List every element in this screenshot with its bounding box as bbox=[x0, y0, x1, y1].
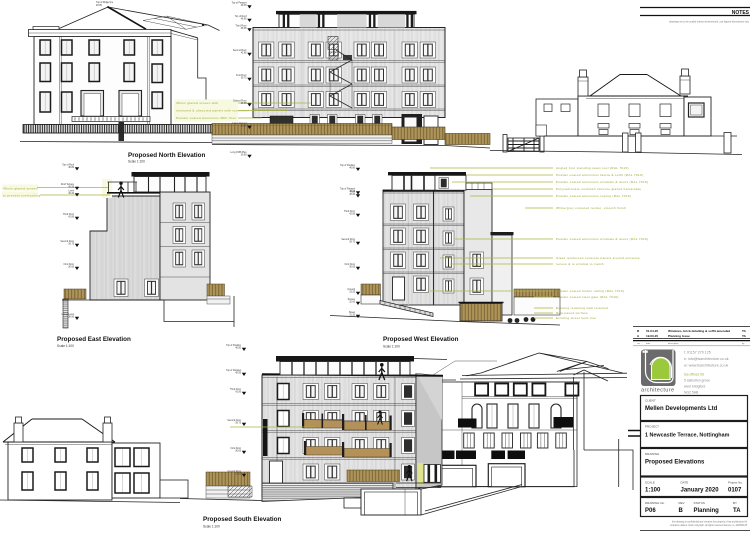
svg-text:PROJECT: PROJECT bbox=[645, 425, 659, 429]
svg-text:Proposed South Elevation: Proposed South Elevation bbox=[203, 516, 282, 523]
svg-text:Top of Parapet: Top of Parapet bbox=[226, 369, 241, 372]
svg-text:46.80: 46.80 bbox=[235, 347, 241, 349]
svg-text:west bridgford: west bridgford bbox=[684, 385, 705, 389]
svg-text:Top of Parapet: Top of Parapet bbox=[340, 187, 355, 190]
svg-text:39.75: 39.75 bbox=[349, 241, 355, 243]
svg-text:Polycarbonate multiwall obscur: Polycarbonate multiwall obscure glazed b… bbox=[556, 187, 641, 191]
svg-text:19.03.20: 19.03.20 bbox=[646, 334, 658, 338]
svg-text:32.60: 32.60 bbox=[349, 301, 355, 303]
svg-text:ordnance data is crown copyrig: ordnance data is crown copyright, all ri… bbox=[670, 524, 748, 527]
svg-text:30.80: 30.80 bbox=[241, 154, 247, 156]
svg-text:36.65: 36.65 bbox=[235, 450, 241, 452]
svg-text:description: description bbox=[668, 342, 679, 345]
svg-text:Proposed North Elevation: Proposed North Elevation bbox=[128, 152, 205, 159]
svg-text:46.80: 46.80 bbox=[241, 18, 247, 20]
svg-text:46.80: 46.80 bbox=[349, 167, 355, 169]
svg-text:First Floor: First Floor bbox=[231, 447, 242, 450]
svg-text:1 Newcastle Terrace, Nottingha: 1 Newcastle Terrace, Nottingham bbox=[645, 433, 730, 439]
svg-text:45.20: 45.20 bbox=[68, 193, 74, 195]
svg-text:45.95: 45.95 bbox=[241, 28, 247, 30]
svg-text:e: info@tsarchitecture.co.uk: e: info@tsarchitecture.co.uk bbox=[684, 357, 729, 361]
svg-text:01.04.20: 01.04.20 bbox=[646, 329, 658, 333]
svg-text:Second Floor: Second Floor bbox=[227, 419, 241, 422]
svg-text:Windows, brick detailing & sof: Windows, brick detailing & soffit amende… bbox=[668, 329, 730, 333]
svg-text:Planning: Planning bbox=[694, 508, 720, 514]
svg-text:New paved surface: New paved surface bbox=[556, 311, 588, 315]
svg-text:Third Floor: Third Floor bbox=[235, 24, 246, 27]
svg-text:Powder coated aluminium fascia: Powder coated aluminium fascia & soffit … bbox=[556, 173, 643, 177]
svg-text:Scale 1:100: Scale 1:100 bbox=[57, 344, 74, 348]
svg-text:42.85: 42.85 bbox=[241, 52, 247, 54]
svg-text:5 salbutton grove: 5 salbutton grove bbox=[684, 379, 710, 383]
svg-text:Proposed East Elevation: Proposed East Elevation bbox=[57, 336, 131, 343]
svg-text:49.35: 49.35 bbox=[241, 5, 247, 7]
svg-text:Proposed Elevations: Proposed Elevations bbox=[645, 460, 705, 466]
svg-text:Scale 1:100: Scale 1:100 bbox=[128, 160, 145, 164]
svg-text:January 2020: January 2020 bbox=[681, 488, 720, 494]
svg-text:Project No.: Project No. bbox=[728, 481, 743, 485]
svg-text:Angled zinc standing seam roof: Angled zinc standing seam roof (RAL 7016… bbox=[556, 166, 629, 170]
svg-text:DRAWING No.: DRAWING No. bbox=[645, 501, 665, 505]
svg-text:First Floor: First Floor bbox=[345, 263, 356, 266]
svg-text:30.80: 30.80 bbox=[68, 316, 74, 318]
svg-text:First Floor: First Floor bbox=[64, 263, 75, 266]
svg-text:White/grey coloured render, sm: White/grey coloured render, smooth finis… bbox=[556, 206, 626, 210]
svg-text:Proposed West Elevation: Proposed West Elevation bbox=[383, 336, 459, 343]
svg-text:Planning Issue: Planning Issue bbox=[668, 334, 690, 338]
svg-text:45.95: 45.95 bbox=[68, 186, 74, 188]
svg-text:SCALE: SCALE bbox=[645, 481, 655, 485]
svg-text:Terrace: Terrace bbox=[347, 298, 355, 301]
svg-text:31.20: 31.20 bbox=[349, 314, 355, 316]
svg-text:39.75: 39.75 bbox=[241, 77, 247, 79]
svg-text:Existing retaining wall retain: Existing retaining wall retained bbox=[556, 306, 608, 310]
svg-text:DATE: DATE bbox=[681, 481, 689, 485]
svg-text:Scale 1:100: Scale 1:100 bbox=[383, 345, 400, 349]
svg-text:Scale 1:100: Scale 1:100 bbox=[203, 525, 220, 529]
svg-text:Roof Terrace: Roof Terrace bbox=[61, 183, 75, 186]
svg-text:42.85: 42.85 bbox=[68, 216, 74, 218]
svg-text:36.65: 36.65 bbox=[68, 266, 74, 268]
svg-text:DRAWING: DRAWING bbox=[645, 452, 660, 456]
svg-text:42.85: 42.85 bbox=[349, 213, 355, 215]
svg-text:Third Floor: Third Floor bbox=[344, 210, 355, 213]
svg-text:REV: REV bbox=[679, 501, 685, 505]
svg-text:Street: Street bbox=[349, 311, 355, 314]
svg-text:48.95: 48.95 bbox=[96, 5, 102, 7]
svg-text:BY: BY bbox=[733, 501, 737, 505]
svg-text:Powder coated timber railing (: Powder coated timber railing (RAL 7016) bbox=[556, 289, 624, 293]
svg-text:Powder coated aluminium coping: Powder coated aluminium coping (RAL 7016… bbox=[556, 194, 631, 198]
svg-text:TA: TA bbox=[733, 508, 741, 514]
svg-text:Second Floor: Second Floor bbox=[60, 240, 74, 243]
svg-text:45.95: 45.95 bbox=[235, 372, 241, 374]
svg-text:t: 01157 270 125: t: 01157 270 125 bbox=[684, 351, 711, 355]
svg-text:NG2 5AB: NG2 5AB bbox=[684, 391, 699, 395]
svg-text:33.90: 33.90 bbox=[241, 125, 247, 127]
svg-text:33.55: 33.55 bbox=[235, 473, 241, 475]
svg-text:Powder coated aluminium 38th f: Powder coated aluminium 38th floor bbox=[176, 116, 236, 120]
svg-text:Third Floor: Third Floor bbox=[230, 388, 241, 391]
svg-text:recess & to window to match: recess & to window to match bbox=[556, 262, 604, 266]
svg-text:0107: 0107 bbox=[728, 488, 742, 494]
svg-text:this drawing is confidential a: this drawing is confidential and remains… bbox=[672, 521, 748, 524]
svg-text:Powder coated aluminium window: Powder coated aluminium windows & doors … bbox=[556, 237, 648, 241]
svg-text:tsa offices ltd: tsa offices ltd bbox=[684, 373, 704, 377]
svg-text:w: www.tsarchitecture.co.uk: w: www.tsarchitecture.co.uk bbox=[684, 364, 729, 368]
svg-text:45.20: 45.20 bbox=[349, 194, 355, 196]
svg-text:39.75: 39.75 bbox=[235, 422, 241, 424]
svg-text:Existing street kerb line: Existing street kerb line bbox=[556, 316, 596, 320]
svg-text:STATUS: STATUS bbox=[694, 501, 705, 505]
svg-text:45min glazed screen with: 45min glazed screen with bbox=[176, 101, 219, 105]
svg-text:Ground Floor: Ground Floor bbox=[233, 99, 247, 102]
svg-text:to prevent overlooking: to prevent overlooking bbox=[3, 194, 40, 198]
svg-text:46.80: 46.80 bbox=[68, 167, 74, 169]
svg-text:Powder coated aluminium window: Powder coated aluminium windows & doors … bbox=[556, 180, 648, 184]
svg-text:architecture: architecture bbox=[641, 388, 674, 394]
svg-text:First Floor: First Floor bbox=[236, 74, 247, 77]
svg-text:Third Floor: Third Floor bbox=[63, 213, 74, 216]
svg-text:36.65: 36.65 bbox=[241, 103, 247, 105]
svg-text:Ground Floor: Ground Floor bbox=[227, 470, 241, 473]
svg-text:Lower Ground: Lower Ground bbox=[232, 122, 247, 125]
svg-text:Top of Parapet: Top of Parapet bbox=[232, 1, 247, 4]
svg-text:36.65: 36.65 bbox=[349, 266, 355, 268]
svg-text:45min glazed screen: 45min glazed screen bbox=[3, 187, 38, 191]
svg-text:Ground: Ground bbox=[347, 288, 355, 291]
svg-text:42.85: 42.85 bbox=[235, 391, 241, 393]
svg-text:Second Floor: Second Floor bbox=[341, 238, 355, 241]
svg-text:drawings not to be scaled unle: drawings not to be scaled unless dimensi… bbox=[669, 21, 750, 24]
svg-text:P06: P06 bbox=[645, 508, 656, 514]
svg-text:Mellen Developments Ltd: Mellen Developments Ltd bbox=[645, 406, 718, 412]
svg-text:1:100: 1:100 bbox=[645, 488, 661, 494]
svg-text:Lower Level: Lower Level bbox=[62, 313, 75, 316]
svg-text:NOTES: NOTES bbox=[732, 10, 750, 16]
svg-text:Glass reinforced concrete pane: Glass reinforced concrete panels around … bbox=[556, 256, 640, 260]
svg-text:Powder coated steel gate (RAL: Powder coated steel gate (RAL 7016) bbox=[556, 295, 619, 299]
svg-text:39.75: 39.75 bbox=[68, 243, 74, 245]
svg-text:Second Floor: Second Floor bbox=[233, 49, 247, 52]
svg-text:33.55: 33.55 bbox=[349, 291, 355, 293]
svg-text:CLIENT: CLIENT bbox=[645, 399, 656, 403]
svg-text:B: B bbox=[679, 508, 684, 514]
